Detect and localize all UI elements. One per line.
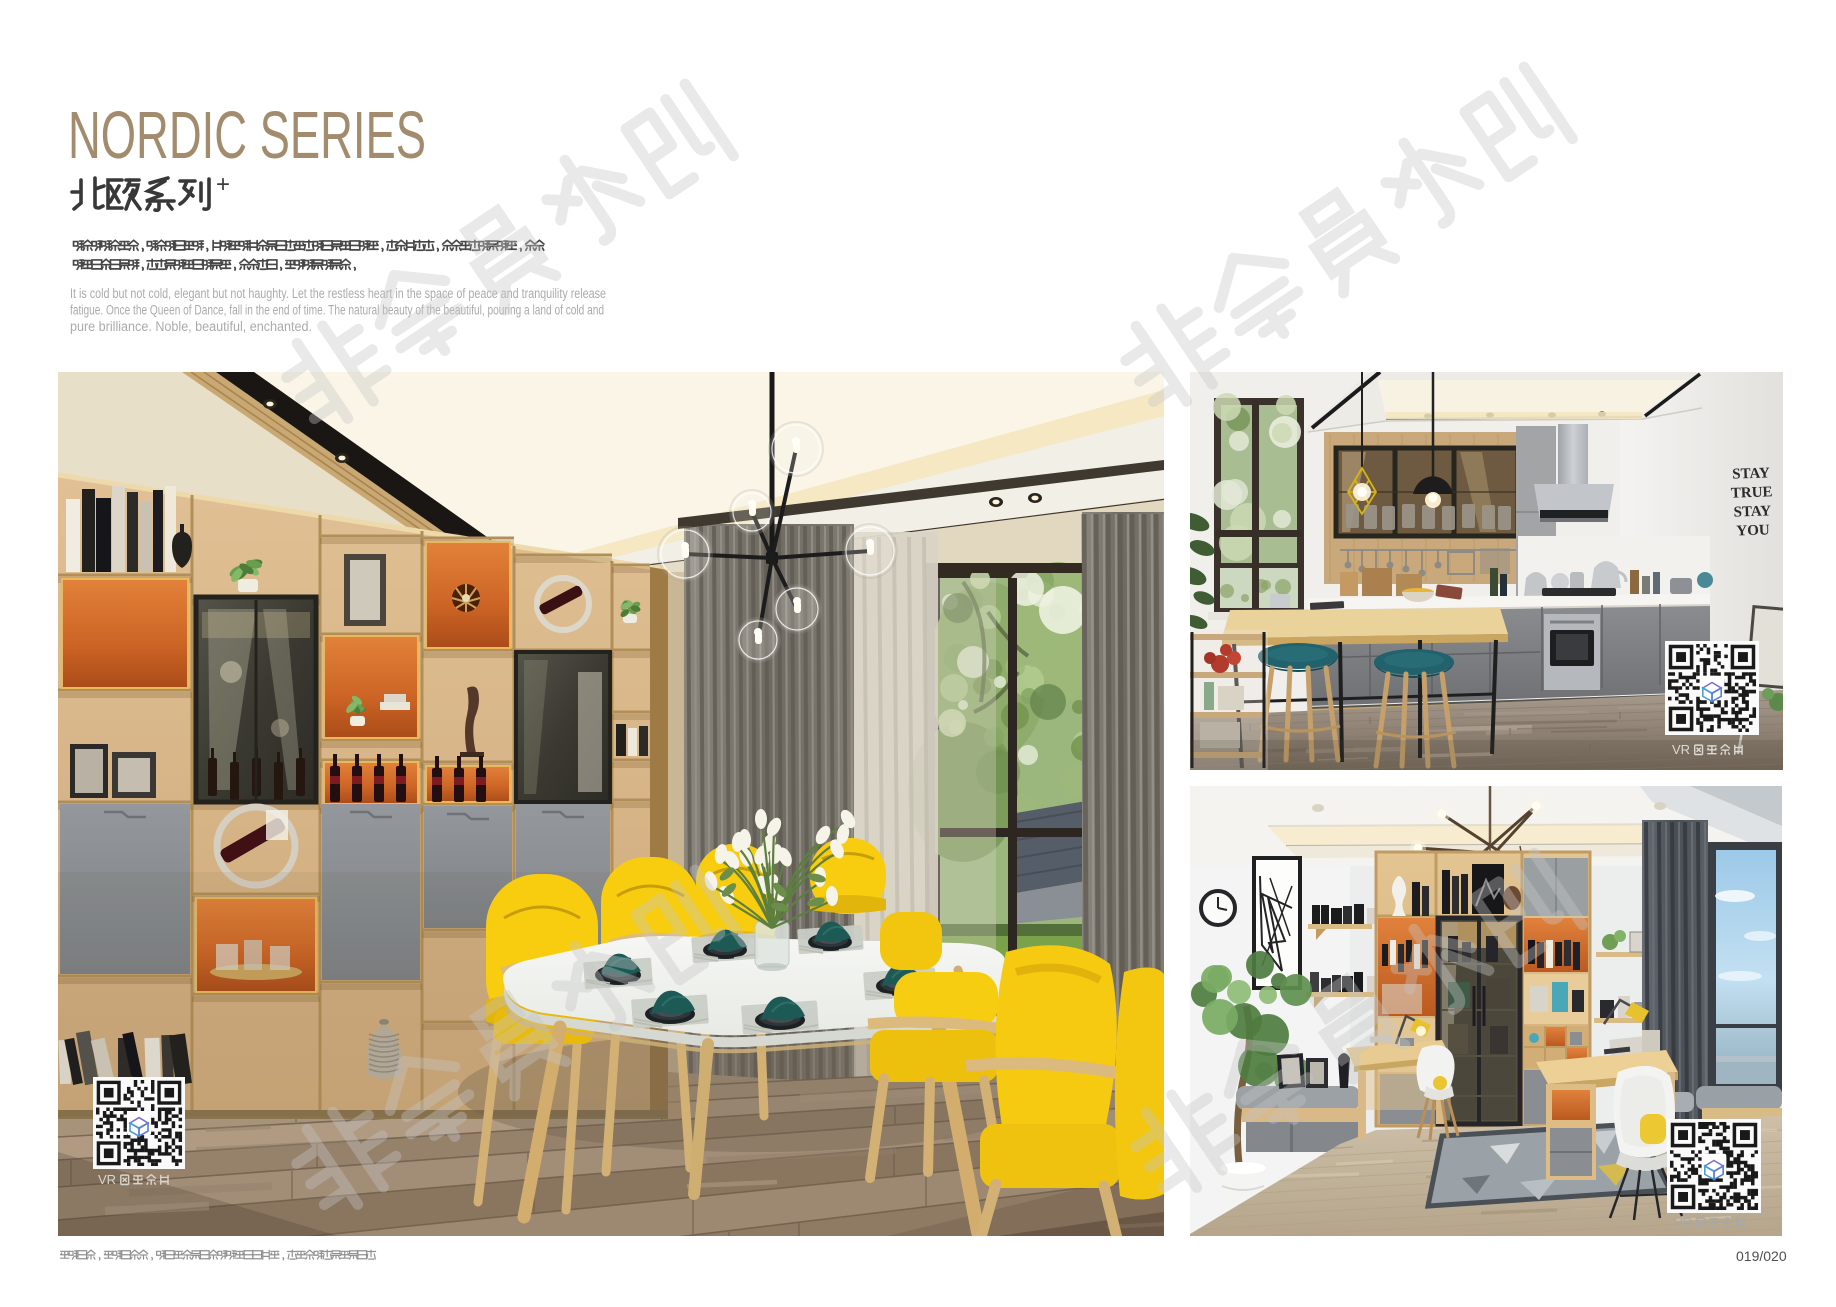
svg-text:VR: VR	[1672, 742, 1690, 757]
svg-text:STAY: STAY	[1733, 503, 1771, 520]
svg-text:fatigue. Once the Queen of Dan: fatigue. Once the Queen of Dance, fall i…	[70, 303, 604, 318]
svg-text:VR: VR	[98, 1172, 116, 1187]
svg-text:019/020: 019/020	[1736, 1248, 1787, 1264]
svg-text:pure brilliance. Noble, beauti: pure brilliance. Noble, beautiful, encha…	[70, 319, 312, 334]
svg-text:STAY: STAY	[1732, 465, 1770, 482]
svg-text:TRUE: TRUE	[1731, 484, 1773, 501]
svg-text:It is cold but not cold, elega: It is cold but not cold, elegant but not…	[70, 286, 606, 301]
svg-text:YOU: YOU	[1736, 522, 1770, 539]
svg-text:VR: VR	[1674, 1215, 1692, 1230]
